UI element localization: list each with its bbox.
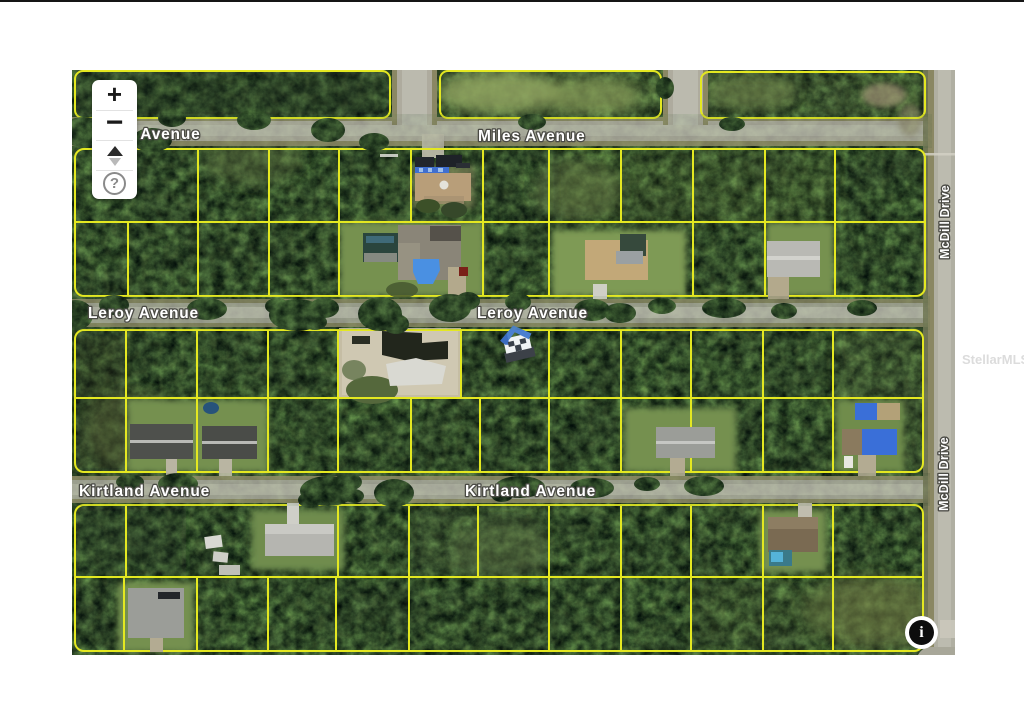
svg-text:McDill Drive: McDill Drive xyxy=(937,437,951,511)
svg-text:Leroy Avenue: Leroy Avenue xyxy=(88,305,199,322)
svg-text:McDill Drive: McDill Drive xyxy=(938,185,952,259)
svg-text:Kirtland Avenue: Kirtland Avenue xyxy=(465,483,596,500)
svg-text:Miles Avenue: Miles Avenue xyxy=(478,128,586,145)
svg-text:Leroy Avenue: Leroy Avenue xyxy=(477,305,588,322)
svg-text:Kirtland Avenue: Kirtland Avenue xyxy=(79,483,210,500)
